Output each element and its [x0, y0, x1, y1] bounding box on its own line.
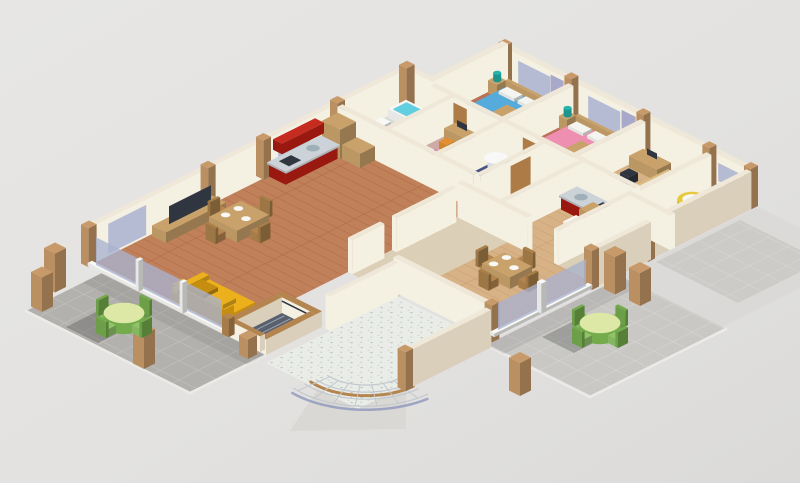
terrace-right-pillar-1	[615, 252, 626, 295]
dining-table-1-chair-back	[270, 200, 273, 217]
patio-set-right-chair-back	[625, 309, 628, 326]
living2-mullion	[541, 281, 546, 314]
dining-table-1-plate-3	[241, 216, 251, 221]
terrace-right-pillar-2	[640, 268, 651, 307]
pillar-cap-se-2	[592, 248, 599, 291]
wall-foyer-nw	[326, 294, 330, 331]
bed1-lamp-left	[493, 71, 501, 75]
patio-set-left-table-top	[104, 303, 145, 323]
patio-set-left-chair-back	[149, 299, 152, 316]
dining-table-1-chair-back	[258, 226, 261, 243]
terrace-right-pillar-2	[629, 268, 640, 307]
terrace-right-pillar-3	[520, 358, 531, 397]
patio-set-right-table-top	[580, 313, 621, 333]
living2-mullion	[537, 282, 541, 314]
dining-table-2-plate-1	[502, 255, 512, 260]
living1-mullion-2	[183, 281, 187, 314]
patio-set-right-chair-back	[572, 309, 575, 326]
living1-mullion-1	[136, 260, 139, 292]
pillar-cap-ne-5	[751, 166, 758, 210]
stairwell-wall-ne	[316, 311, 322, 330]
living1-mullion-2	[180, 282, 183, 314]
dining-table-1-chair-back	[216, 227, 219, 244]
pillar-cap-nw-5	[81, 225, 89, 268]
pillar-cap-nw-3	[256, 137, 264, 180]
dining-table-2-chair-back	[476, 250, 479, 267]
terrace-left-pillar-1	[55, 248, 66, 293]
dining-table-2-chair-back	[533, 252, 536, 269]
stairwell-wall-sw	[260, 334, 265, 352]
terrace-right-pillar-3	[509, 358, 520, 397]
patio-set-left-chair-back	[106, 321, 109, 338]
terrace-left-pillar-2	[31, 272, 42, 312]
dining-table-1-chair-back	[208, 201, 211, 218]
patio-set-left-chair-back	[96, 299, 99, 316]
dining-table-1-plate-2	[221, 213, 231, 218]
pillar-cap-entry	[406, 349, 413, 392]
terrace-right-pillar-1	[604, 252, 615, 295]
wall-living1-hall-a	[392, 216, 396, 253]
pillar-cap-entry	[398, 348, 406, 391]
bed2-lamp-left	[564, 106, 572, 110]
living1-mullion-1	[139, 259, 143, 292]
kitchen1-sink	[306, 145, 320, 152]
pillar-cap-stair-sw	[222, 316, 229, 337]
dining-table-2-plate-3	[509, 265, 519, 270]
dining-table-1-plate-1	[234, 206, 244, 211]
wall-bathroom2-front	[670, 213, 675, 250]
kitchen2-sink	[574, 194, 588, 201]
dining-table-2-plate-2	[489, 262, 499, 267]
patio-set-right-chair-back	[615, 331, 618, 348]
wall-kitchen2-corridor	[554, 229, 558, 266]
wall-kitchen2-front	[527, 215, 532, 252]
patio-set-right-chair-back	[582, 331, 585, 348]
floor-plan-stage	[0, 0, 800, 483]
patio-set-left-chair-back	[139, 321, 142, 338]
floor-plan-3d-render	[0, 0, 800, 483]
pillar-cap-stair-sw	[229, 316, 235, 337]
terrace-left-pillar-2	[42, 272, 53, 312]
pillar-cap-nw-5	[89, 224, 97, 267]
wall-living1-hall-b	[348, 238, 352, 275]
dining-table-2-chair-back	[489, 274, 492, 291]
